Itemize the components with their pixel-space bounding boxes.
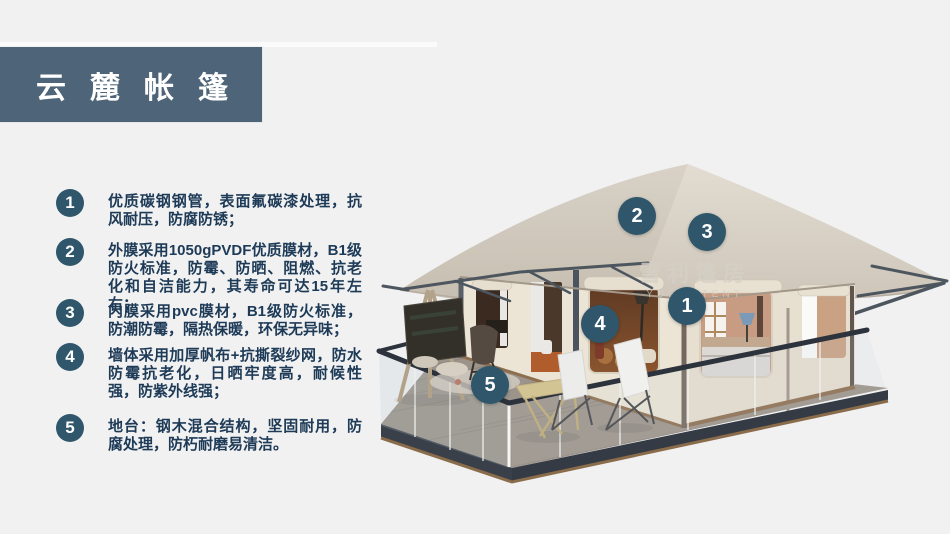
callout-number: 3 xyxy=(701,221,712,244)
slide: 云麓帐篷 xyxy=(0,0,950,534)
feature-text: 优质碳钢钢管，表面氟碳漆处理，抗风耐压，防腐防锈； xyxy=(108,193,362,229)
feature-item-4: 4 墙体采用加厚帆布+抗撕裂纱网，防水防霉抗老化，日晒牢度高，耐候性强，防紫外线… xyxy=(56,343,362,401)
callout-number: 1 xyxy=(681,295,692,318)
callout-badge-5: 5 xyxy=(471,366,509,404)
callout-number: 2 xyxy=(631,205,642,228)
feature-text: 内膜采用pvc膜材，B1级防火标准，防潮防霉，隔热保暖，环保无异味； xyxy=(108,303,362,339)
feature-text: 地台：钢木混合结构，坚固耐用，防腐处理，防朽耐磨易清洁。 xyxy=(108,418,362,454)
callout-number: 5 xyxy=(484,374,495,397)
callout-badge-1: 1 xyxy=(668,287,706,325)
feature-text: 墙体采用加厚帆布+抗撕裂纱网，防水防霉抗老化，日晒牢度高，耐候性强，防紫外线强； xyxy=(108,347,362,401)
feature-item-1: 1 优质碳钢钢管，表面氟碳漆处理，抗风耐压，防腐防锈； xyxy=(56,189,362,229)
feature-badge: 3 xyxy=(56,299,84,327)
feature-item-3: 3 内膜采用pvc膜材，B1级防火标准，防潮防霉，隔热保暖，环保无异味； xyxy=(56,299,362,339)
door-opening xyxy=(531,282,562,372)
feature-item-5: 5 地台：钢木混合结构，坚固耐用，防腐处理，防朽耐磨易清洁。 xyxy=(56,414,362,454)
feature-badge: 1 xyxy=(56,189,84,217)
callout-badge-4: 4 xyxy=(581,305,619,343)
callout-badge-2: 2 xyxy=(618,197,656,235)
feature-badge: 5 xyxy=(56,414,84,442)
awning-roll-bedroom xyxy=(694,280,782,293)
feature-list: 1 优质碳钢钢管，表面氟碳漆处理，抗风耐压，防腐防锈； 2 外膜采用1050gP… xyxy=(56,0,366,534)
feature-badge: 2 xyxy=(56,238,84,266)
callout-number: 4 xyxy=(594,313,605,336)
feature-badge: 4 xyxy=(56,343,84,371)
callout-badge-3: 3 xyxy=(688,213,726,251)
